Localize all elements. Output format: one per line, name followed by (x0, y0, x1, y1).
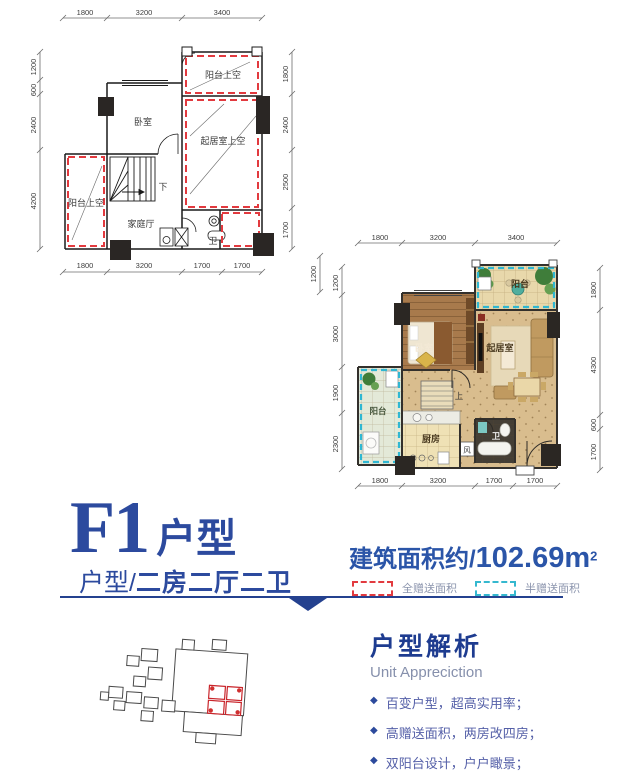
half-gift-label: 半赠送面积 (525, 580, 580, 596)
svg-text:1700: 1700 (589, 444, 598, 461)
toilet (500, 424, 510, 437)
upper-living-void-label: 起居室上空 (200, 135, 245, 146)
unit-code-suffix: 户型 (156, 517, 236, 561)
unit-subtitle-main: 二房二厅二卫 (136, 569, 292, 597)
upper-floor-plan: 1800 3200 3400 1800 3200 1700 1700 1200 … (10, 4, 340, 300)
upper-stairs-label: 下 (158, 182, 167, 192)
entry-step (516, 466, 534, 475)
diamond-bullet-icon: ◆ (370, 723, 378, 739)
analysis-bullet-list: ◆百变户型，超高实用率； ◆高赠送面积，两房改四房； ◆双阳台设计，户户瞰景； … (370, 693, 600, 782)
upper-door-arcs (158, 53, 196, 232)
svg-text:1700: 1700 (486, 476, 503, 485)
svg-text:4200: 4200 (29, 193, 38, 210)
svg-text:1800: 1800 (281, 66, 290, 83)
tv (479, 333, 483, 361)
analysis-bullet: ◆高赠送面积，两房改四房； (370, 723, 600, 742)
analysis-bullet: ◆双阳台设计，户户瞰景； (370, 753, 600, 772)
upper-gift-areas (68, 56, 259, 246)
lower-living-label: 起居室 (485, 342, 513, 353)
building-area-label: 建筑面积约/ (349, 546, 476, 573)
svg-text:2400: 2400 (29, 117, 38, 134)
analysis-bullet: ◆百变户型，超高实用率； (370, 693, 600, 712)
svg-text:1200: 1200 (29, 59, 38, 76)
lower-kitchen-label: 厨房 (422, 433, 440, 444)
upper-walls (65, 52, 262, 249)
analysis-title: 户型解析 (370, 627, 600, 663)
svg-text:3200: 3200 (430, 476, 447, 485)
half-gift-swatch (475, 581, 516, 596)
building-area-value: 102.69m (476, 542, 591, 574)
washer (363, 432, 379, 454)
svg-text:3200: 3200 (136, 261, 153, 270)
svg-text:1700: 1700 (281, 222, 290, 239)
upper-bath-label: 卫 (208, 236, 217, 246)
diamond-bullet-icon: ◆ (370, 693, 378, 709)
dining-table (514, 378, 540, 396)
lower-balcony-left-label: 阳台 (369, 406, 387, 416)
svg-text:3200: 3200 (430, 233, 447, 242)
building-area-sup: 2 (590, 549, 597, 564)
svg-text:1200: 1200 (309, 266, 318, 283)
svg-text:1800: 1800 (372, 476, 389, 485)
svg-text:1700: 1700 (194, 261, 211, 270)
upper-stairs (110, 157, 155, 201)
svg-text:1900: 1900 (331, 385, 340, 402)
divider-arrow-icon (289, 598, 327, 611)
lower-floor-plan: 1800 3200 3400 1800 3200 1700 1700 1200 … (328, 226, 627, 498)
lower-bedroom-label: 卧室 (415, 342, 433, 353)
lower-bath-label: 卫 (492, 431, 501, 441)
svg-text:1800: 1800 (589, 282, 598, 299)
wardrobe (466, 298, 475, 364)
lower-stairs-label: 上 (455, 391, 464, 401)
svg-text:4300: 4300 (589, 357, 598, 374)
svg-text:1700: 1700 (527, 476, 544, 485)
bathtub (478, 442, 511, 455)
basin (478, 422, 487, 433)
svg-text:1200: 1200 (331, 275, 340, 292)
full-gift-swatch (352, 581, 393, 596)
svg-text:3200: 3200 (136, 8, 153, 17)
flyer-page: 1800 3200 3400 1800 3200 1700 1700 1200 … (0, 0, 627, 782)
diamond-bullet-icon: ◆ (370, 753, 378, 769)
svg-text:1800: 1800 (77, 261, 94, 270)
svg-text:3400: 3400 (508, 233, 525, 242)
lower-stairs (421, 381, 453, 409)
unit-subtitle: 户型/二房二厅二卫 (79, 563, 292, 599)
building-area: 建筑面积约/102.69m2 (349, 539, 597, 575)
unit-title: F1户型 (70, 497, 236, 564)
unit-code: F1 (70, 487, 148, 569)
svg-text:2300: 2300 (331, 436, 340, 453)
unit-subtitle-prefix: 户型/ (79, 569, 136, 597)
svg-text:600: 600 (589, 419, 598, 432)
lower-balcony-top-label: 阳台 (511, 278, 529, 289)
upper-balcony-top-label: 阳台上空 (205, 69, 241, 80)
svg-text:2400: 2400 (281, 117, 290, 134)
svg-text:1800: 1800 (372, 233, 389, 242)
gift-area-legend: 全赠送面积 半赠送面积 (352, 580, 580, 596)
svg-text:600: 600 (29, 84, 38, 97)
upper-balcony-left-label: 阳台上空 (68, 197, 104, 208)
full-gift-label: 全赠送面积 (402, 580, 457, 596)
svg-text:1700: 1700 (234, 261, 251, 270)
site-plan (80, 636, 300, 776)
lower-shaft-label: 风 (463, 446, 471, 455)
svg-text:2500: 2500 (281, 174, 290, 191)
unit-analysis: 户型解析 Unit Appreciction ◆百变户型，超高实用率； ◆高赠送… (370, 627, 600, 782)
analysis-subtitle: Unit Appreciction (370, 664, 600, 681)
upper-bedroom-label: 卧室 (134, 116, 152, 127)
upper-dim-labels: 1800 3200 3400 1800 3200 1700 1700 1200 … (29, 8, 318, 282)
svg-text:3000: 3000 (331, 326, 340, 343)
svg-text:3400: 3400 (214, 8, 231, 17)
upper-dim-lines (37, 15, 323, 295)
upper-family-hall-label: 家庭厅 (127, 218, 154, 229)
svg-text:1800: 1800 (77, 8, 94, 17)
